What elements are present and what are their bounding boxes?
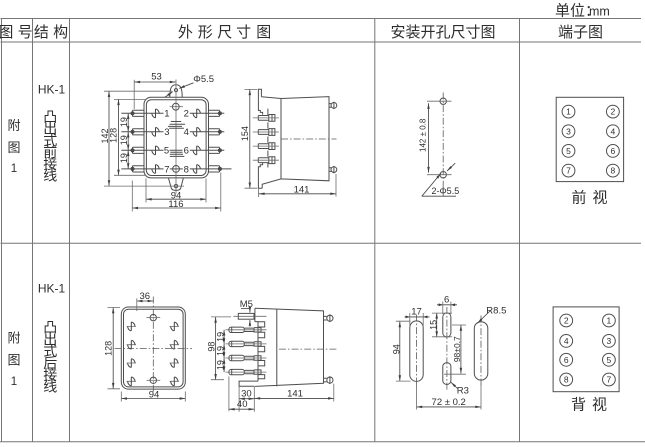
svg-text:98±0.7: 98±0.7: [452, 336, 462, 362]
svg-text:外: 外: [178, 24, 193, 41]
svg-text:94: 94: [149, 389, 160, 400]
svg-text:7: 7: [164, 164, 169, 175]
svg-text:128: 128: [108, 128, 118, 143]
svg-text:前: 前: [571, 190, 586, 207]
svg-text:5: 5: [566, 146, 571, 156]
svg-text:19: 19: [216, 332, 226, 342]
svg-text:4: 4: [564, 336, 569, 346]
svg-text:3: 3: [566, 126, 571, 136]
svg-text:72 ± 0.2: 72 ± 0.2: [432, 397, 466, 408]
svg-text:HK-1: HK-1: [38, 281, 66, 295]
svg-text:背: 背: [571, 397, 586, 414]
svg-text:尺: 尺: [217, 24, 232, 41]
svg-text:图: 图: [7, 352, 20, 367]
svg-text:1: 1: [11, 163, 17, 175]
svg-text:线: 线: [43, 379, 57, 395]
svg-text:寸: 寸: [236, 24, 251, 41]
svg-text:线: 线: [43, 168, 57, 184]
svg-text:7: 7: [566, 166, 571, 176]
svg-text:mm: mm: [589, 4, 610, 18]
svg-text:结 构: 结 构: [34, 24, 68, 41]
svg-text:128: 128: [104, 341, 114, 356]
svg-text:Φ5.5: Φ5.5: [193, 74, 214, 85]
svg-text:图 号: 图 号: [0, 24, 33, 41]
svg-text:2: 2: [611, 107, 616, 117]
svg-text:3: 3: [607, 336, 612, 346]
svg-text:141: 141: [287, 389, 303, 400]
svg-text:17: 17: [411, 307, 422, 318]
svg-text:6: 6: [184, 146, 189, 157]
svg-text:3: 3: [164, 127, 169, 138]
svg-text:6: 6: [444, 295, 449, 306]
svg-text:端子图: 端子图: [558, 24, 603, 41]
svg-text:形: 形: [198, 24, 213, 41]
svg-text:94: 94: [391, 344, 401, 354]
svg-text:142 ± 0.8: 142 ± 0.8: [419, 118, 428, 152]
svg-text:19: 19: [216, 360, 226, 370]
svg-text:8: 8: [611, 166, 616, 176]
svg-text:5: 5: [164, 146, 169, 157]
svg-text:30: 30: [241, 388, 252, 399]
svg-text:141: 141: [294, 184, 310, 195]
svg-text:7: 7: [607, 375, 612, 385]
svg-text:附: 附: [7, 330, 20, 345]
svg-text:2: 2: [564, 316, 569, 326]
svg-text:53: 53: [151, 72, 162, 83]
svg-text:40: 40: [237, 399, 248, 410]
svg-text:15: 15: [428, 320, 438, 330]
svg-text:8: 8: [184, 164, 189, 175]
svg-text:M5: M5: [240, 299, 253, 310]
svg-text:4: 4: [611, 126, 616, 136]
svg-text:6: 6: [611, 146, 616, 156]
svg-text:4: 4: [184, 127, 189, 138]
svg-text:视: 视: [592, 190, 607, 207]
svg-text:1: 1: [607, 316, 612, 326]
svg-text:图: 图: [7, 140, 20, 155]
svg-text:1: 1: [164, 109, 169, 120]
svg-text:2: 2: [184, 109, 189, 120]
svg-text:1: 1: [11, 376, 17, 388]
svg-text:R3: R3: [457, 386, 469, 397]
svg-text:视: 视: [592, 397, 607, 414]
svg-text:19: 19: [216, 346, 226, 356]
svg-text:2-Φ5.5: 2-Φ5.5: [432, 186, 460, 196]
svg-text:图: 图: [256, 24, 271, 41]
svg-text:36: 36: [140, 291, 151, 302]
svg-text:1: 1: [566, 107, 571, 117]
svg-text:6: 6: [564, 355, 569, 365]
svg-text:5: 5: [607, 355, 612, 365]
svg-text:附: 附: [7, 118, 20, 133]
svg-text:19: 19: [119, 117, 129, 127]
svg-text:19: 19: [119, 135, 129, 145]
svg-text:116: 116: [168, 199, 183, 210]
svg-text:154: 154: [240, 126, 250, 141]
svg-text:安装开孔尺寸图: 安装开孔尺寸图: [390, 24, 495, 41]
svg-text:HK-1: HK-1: [38, 82, 66, 96]
svg-text:19: 19: [119, 153, 129, 163]
svg-text:8: 8: [564, 375, 569, 385]
